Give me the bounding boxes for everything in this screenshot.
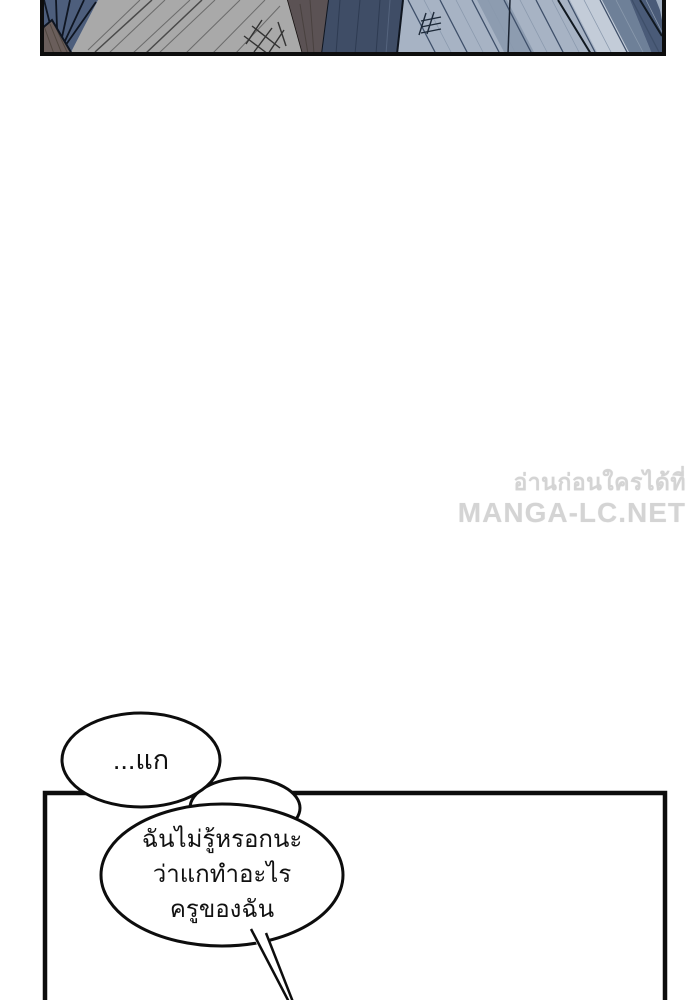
speech-bubble-1-text: ...แก [61,744,221,776]
speech-bubble-2-line-2: ว่าแกทำอะไร [102,857,342,892]
top-panel-artwork [40,0,666,56]
site-watermark: อ่านก่อนใครได้ที่ MANGA-LC.NET [458,469,686,529]
watermark-line-site: MANGA-LC.NET [458,496,686,529]
speech-bubble-2-line-3: ครูของฉัน [102,892,342,927]
speech-bubble-2-text: ฉันไม่รู้หรอกนะ ว่าแกทำอะไร ครูของฉัน [102,822,342,927]
speech-bubble-2-line-1: ฉันไม่รู้หรอกนะ [102,822,342,857]
top-comic-panel [40,0,666,56]
watermark-line-thai: อ่านก่อนใครได้ที่ [458,469,686,496]
